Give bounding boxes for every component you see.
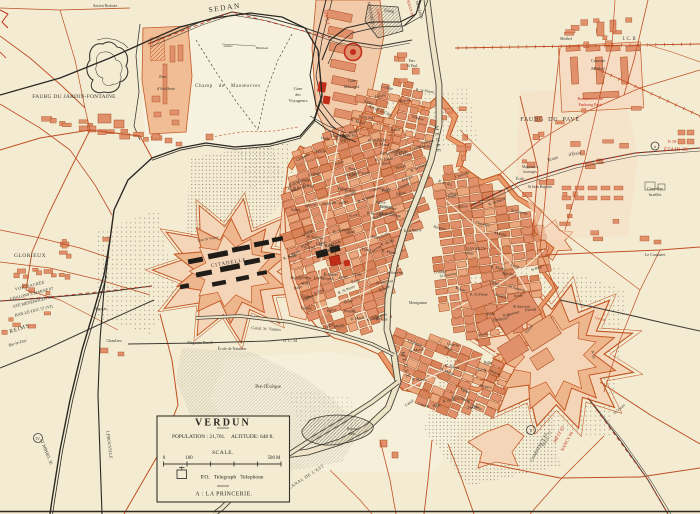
svg-text:Parc: Parc [159, 74, 167, 79]
svg-text:Israélite: Israélite [649, 192, 662, 197]
svg-text:POPULATION : 21,701. ALTITU: POPULATION : 21,701. ALTITUDE: 648 ft. [172, 433, 274, 440]
svg-text:airds: airds [348, 432, 356, 436]
svg-text:Gare: Gare [348, 78, 356, 83]
svg-text:Magasin: Magasin [93, 307, 106, 311]
svg-text:Pré-l'Évêque: Pré-l'Évêque [255, 384, 281, 390]
svg-text:St Sauveur: St Sauveur [513, 305, 531, 309]
svg-text:G. C. 34: G. C. 34 [283, 338, 298, 343]
svg-text:100: 100 [185, 456, 193, 461]
svg-text:N 18: N 18 [668, 139, 678, 144]
svg-text:R. Mazel: R. Mazel [411, 377, 425, 382]
svg-text:SCALE.: SCALE. [212, 450, 234, 456]
svg-text:FAUBG DU JARDIN-FONTAINE: FAUBG DU JARDIN-FONTAINE [32, 94, 116, 100]
svg-text:fourrages: fourrages [523, 170, 537, 174]
svg-text:Voyageurs: Voyageurs [289, 98, 308, 103]
svg-text:Halle: Halle [483, 360, 492, 365]
svg-text:Ancien Redoute: Ancien Redoute [93, 4, 118, 8]
svg-text:Gare: Gare [294, 86, 303, 91]
svg-text:Cimetière: Cimetière [647, 186, 663, 191]
svg-text:Chaulieu: Chaulieu [106, 338, 122, 343]
svg-text:FAUBG DU PAVÉ: FAUBG DU PAVÉ [520, 115, 579, 123]
svg-text:Poste: Poste [487, 312, 496, 316]
svg-text:Évêché: Évêché [396, 149, 408, 155]
svg-text:St Paul: St Paul [407, 64, 418, 68]
svg-text:École: École [478, 367, 487, 372]
svg-text:Théâtre: Théâtre [467, 405, 479, 410]
svg-text:St Sauveur: St Sauveur [387, 271, 405, 275]
svg-text:Palais: Palais [371, 235, 381, 240]
svg-text:Miribel: Miribel [560, 36, 573, 41]
svg-text:Montgaume: Montgaume [409, 301, 428, 305]
svg-text:Hospice: Hospice [321, 276, 334, 280]
svg-text:P.O. Telegraph Telephone: P.O. Telegraph Telephone [200, 475, 264, 481]
svg-text:Halle: Halle [324, 249, 333, 253]
svg-text:École: École [516, 176, 525, 181]
svg-text:I. C. II: I. C. II [622, 37, 636, 42]
svg-text:R. St Pierre: R. St Pierre [470, 293, 488, 297]
svg-text:Miribel: Miribel [591, 66, 605, 71]
svg-text:École de Natation: École de Natation [218, 346, 247, 351]
svg-text:Palais: Palais [291, 208, 301, 212]
svg-text:500 M: 500 M [268, 456, 281, 461]
svg-text:Champ de Manœuvres: Champ de Manœuvres [195, 84, 261, 89]
svg-text:R. St Pierre: R. St Pierre [368, 138, 386, 142]
svg-text:GLORIEUX: GLORIEUX [14, 253, 46, 259]
svg-text:Baraquement du: Baraquement du [578, 97, 603, 101]
svg-text:Métropol.: Métropol. [344, 84, 360, 89]
svg-text:Magasins Dorell: Magasins Dorell [187, 341, 212, 345]
svg-text:Hospice: Hospice [344, 309, 357, 313]
svg-text:Hôtel: Hôtel [490, 281, 499, 286]
svg-text:Faubourg Pavé: Faubourg Pavé [579, 103, 602, 107]
svg-text:Théâtre: Théâtre [300, 306, 312, 310]
svg-text:Mairie: Mairie [315, 149, 326, 154]
svg-text:Caserne: Caserne [591, 58, 606, 63]
svg-text:ÉTAIN 20: ÉTAIN 20 [664, 147, 688, 153]
svg-text:A : LA PRINCERIE.: A : LA PRINCERIE. [195, 492, 252, 498]
svg-text:Palais: Palais [361, 247, 371, 252]
svg-text:Le Coutanet: Le Coutanet [645, 252, 666, 257]
svg-text:IV: IV [36, 437, 40, 441]
svg-text:St Jean Baptiste: St Jean Baptiste [528, 185, 553, 189]
svg-text:d'Artillerie: d'Artillerie [157, 86, 175, 91]
svg-text:Bâtiment: Bâtiment [256, 46, 268, 50]
svg-text:Halle: Halle [301, 281, 310, 286]
svg-text:VERDUN: VERDUN [195, 418, 251, 429]
svg-text:Buisse: Buisse [347, 427, 357, 431]
svg-text:Magasins à: Magasins à [522, 165, 539, 169]
svg-text:Église: Église [458, 203, 468, 208]
svg-text:des: des [295, 92, 301, 97]
svg-text:Caserne: Caserne [380, 205, 393, 209]
svg-text:Parc: Parc [409, 59, 416, 63]
svg-text:Halle: Halle [353, 272, 362, 276]
